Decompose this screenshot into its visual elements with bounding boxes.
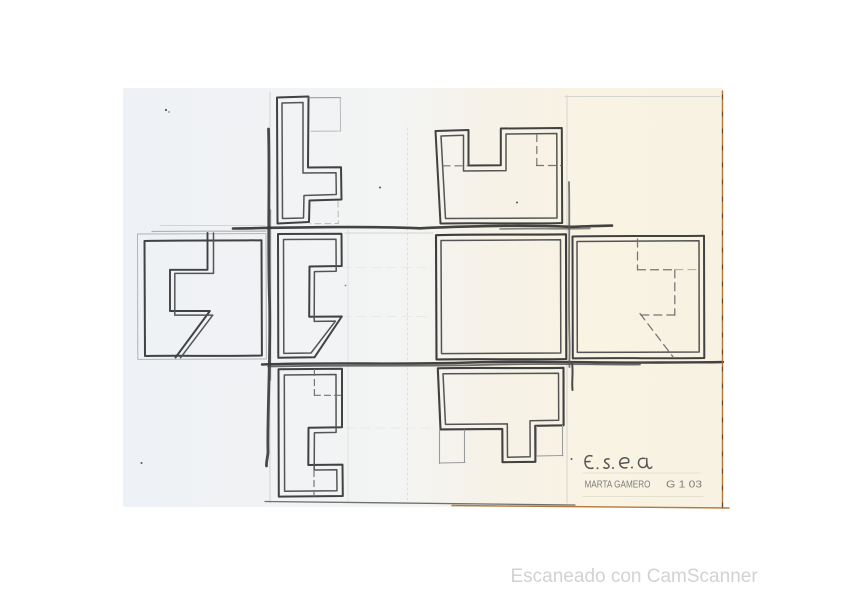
svg-text:G 1 03: G 1 03: [666, 479, 702, 491]
svg-text:MARTA GAMERO: MARTA GAMERO: [585, 479, 651, 491]
